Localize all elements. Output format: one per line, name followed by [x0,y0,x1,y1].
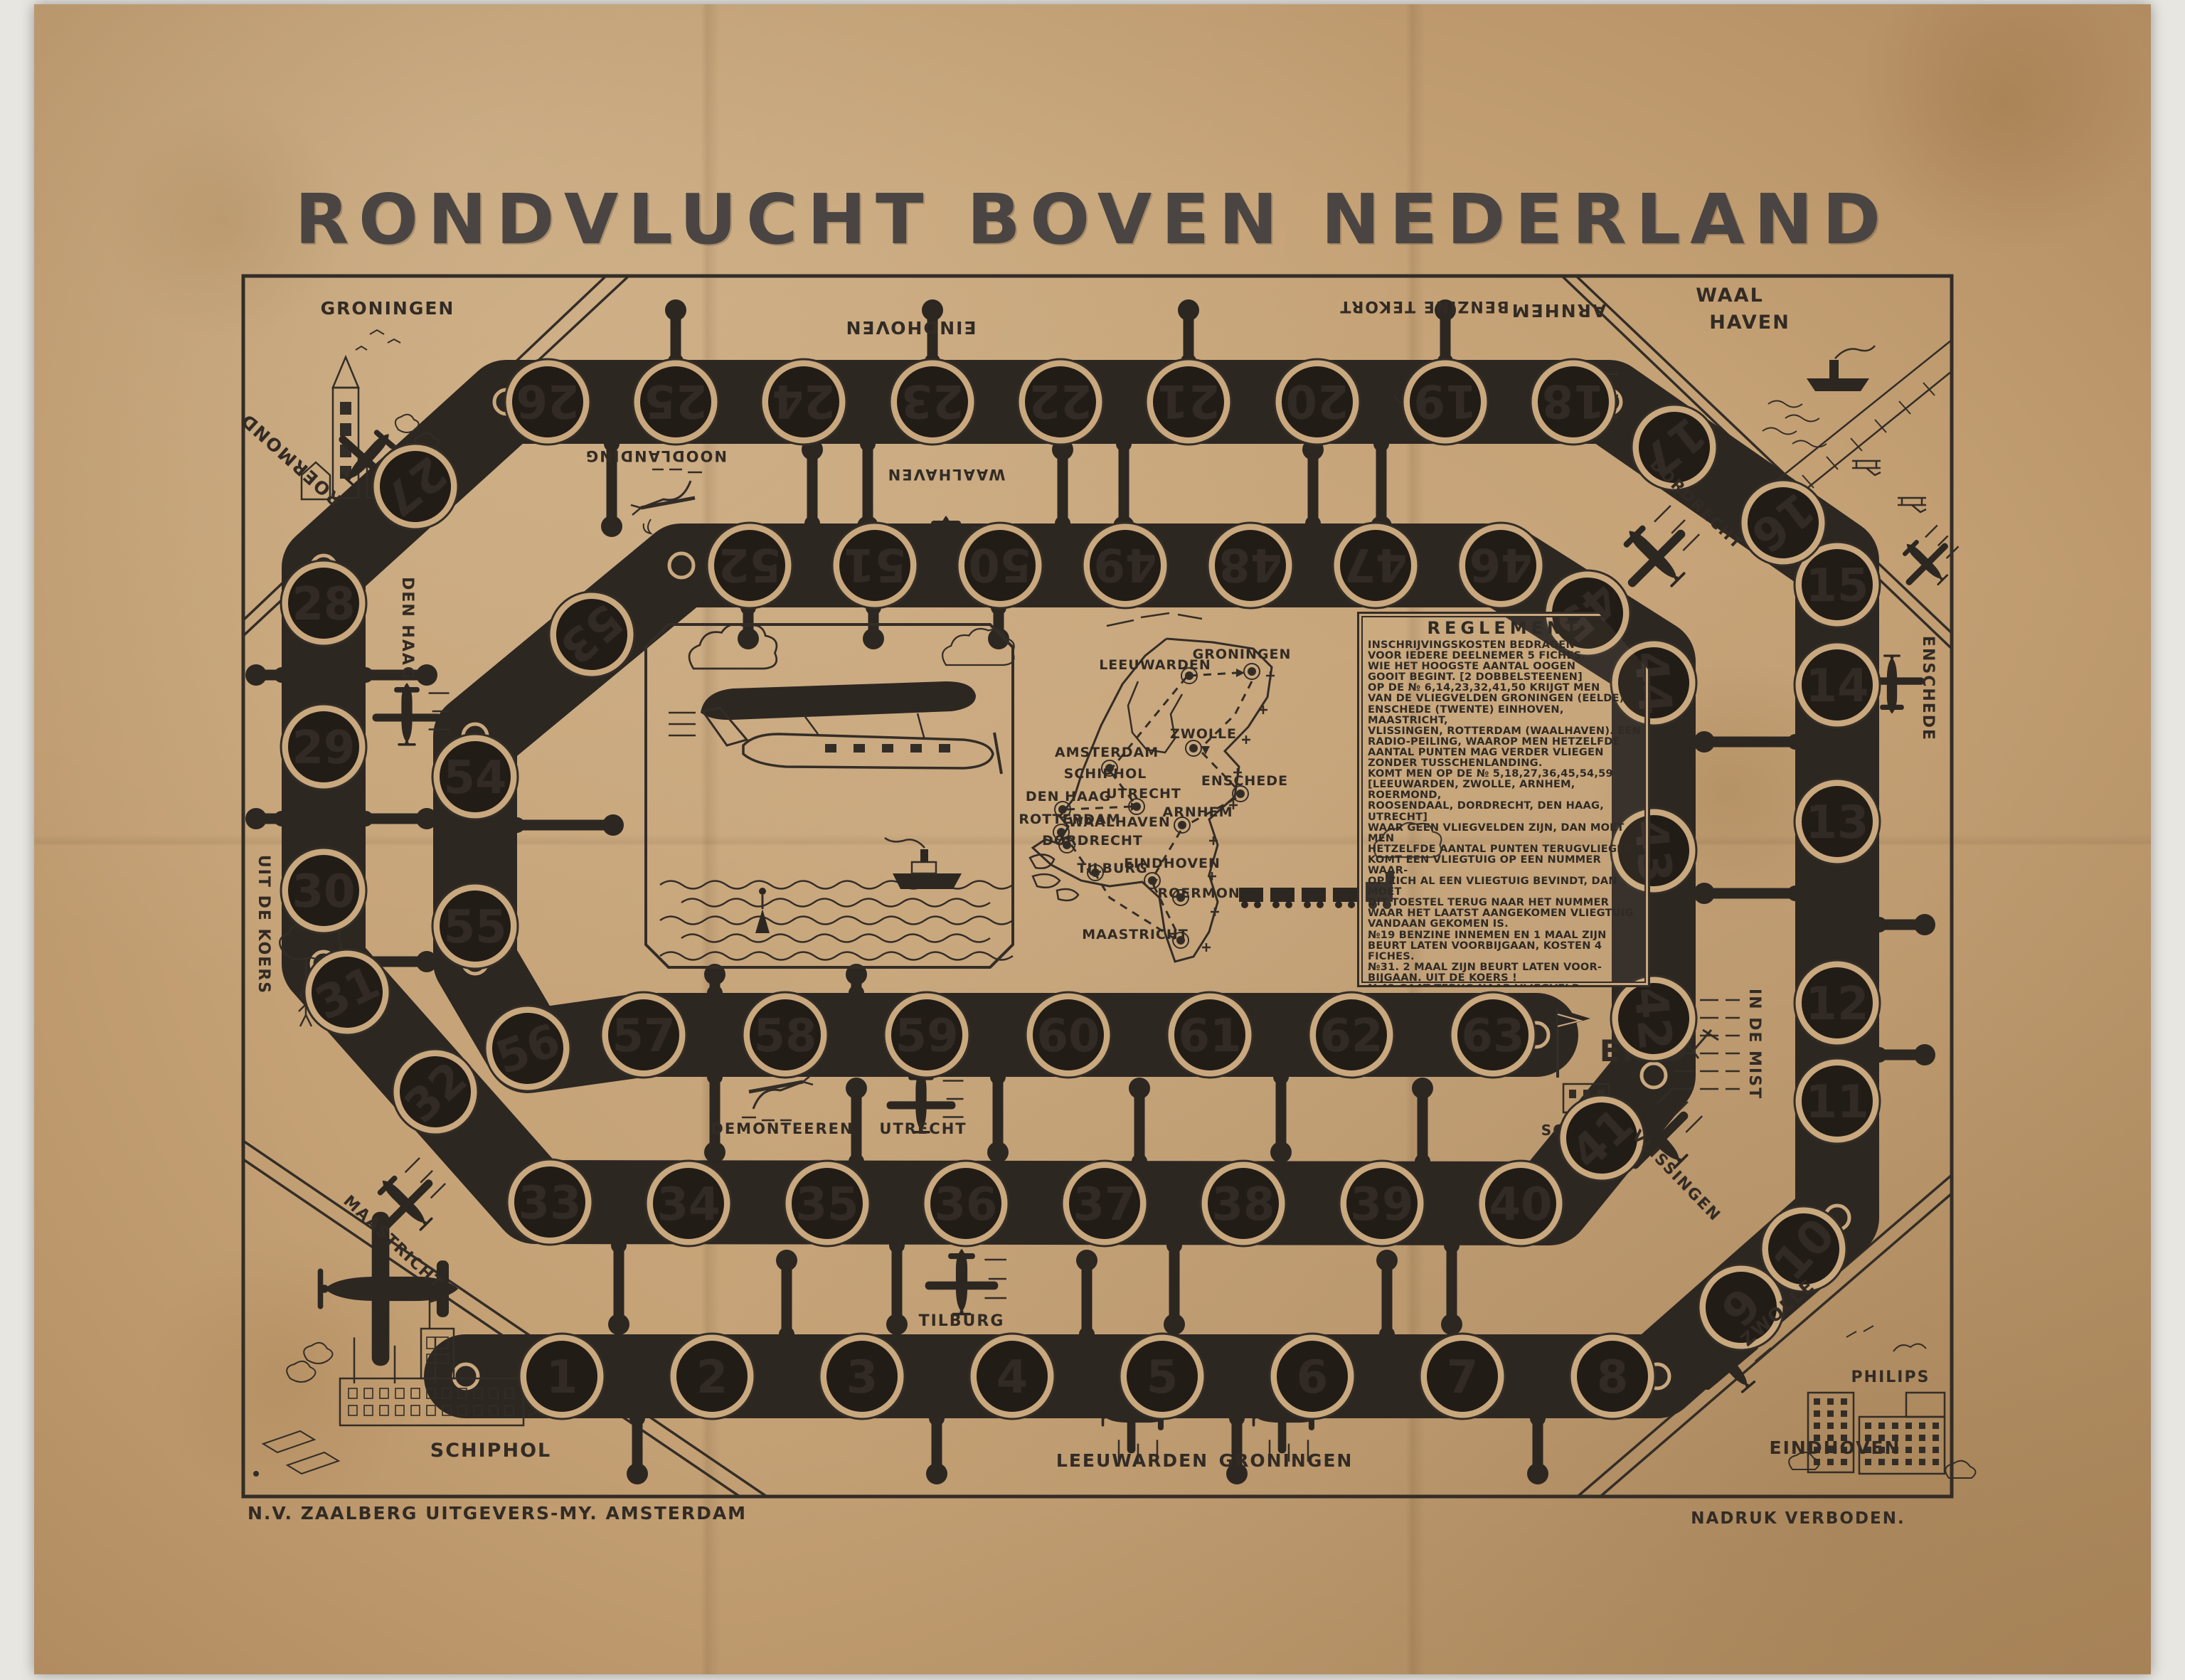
buoy-icon [755,888,770,933]
board-space-57: 57 [601,992,686,1078]
space-number: 61 [1178,1010,1241,1063]
board-space-35: 35 [785,1161,870,1246]
board-space-7: 7 [1420,1334,1505,1419]
map-city-utrecht: UTRECHT [1106,786,1181,802]
board-space-55: 55 [432,883,518,969]
space-number: 6 [1297,1351,1329,1404]
space-number: 24 [772,374,835,427]
track-label-nadruk: NADRUK VERBODEN. [1691,1509,1905,1528]
board-space-28: 28 [281,560,366,646]
board-space-54: 54 [432,734,518,819]
board-space-6: 6 [1270,1334,1355,1419]
board-space-38: 38 [1201,1161,1286,1246]
board-space-30: 30 [281,848,366,933]
space-number: 11 [1805,1076,1868,1129]
board-space-8: 8 [1570,1334,1655,1419]
map-city-schiphol: SCHIPHOL [1064,766,1147,782]
board-space-62: 62 [1309,992,1394,1078]
track-label-schiphol-corner: SCHIPHOL [430,1440,551,1462]
board-space-20: 20 [1275,359,1360,445]
board-space-19: 19 [1403,359,1488,445]
space-number: 8 [1597,1351,1629,1404]
track-label-enschede: ENSCHEDE [1919,636,1937,741]
space-number: 23 [900,374,964,427]
map-city-zwolle: ZWOLLE [1170,726,1237,742]
board-space-46: 46 [1458,523,1543,608]
game-board-poster: GRONINGENLEEUWARDENZWOLLEAMSTERDAMSCHIPH… [0,0,2185,1680]
space-number: 34 [656,1179,720,1231]
track-label-utrecht: UTRECHT [879,1120,967,1137]
board-space-25: 25 [633,359,718,445]
map-city-eindhoven: EINDHOVEN [1124,856,1221,871]
space-number: 59 [895,1010,958,1063]
space-number: 52 [718,538,781,590]
board-space-26: 26 [505,359,590,445]
board-space-61: 61 [1167,992,1253,1078]
board-space-60: 60 [1026,992,1111,1078]
track-label-vlissingen: VLISSINGEN [1628,1127,1724,1225]
board-space-48: 48 [1208,523,1293,608]
space-number: 19 [1413,374,1477,427]
sea-panel [646,624,1014,967]
space-number: 21 [1157,374,1220,427]
space-number: 5 [1147,1351,1179,1404]
board-space-12: 12 [1795,960,1880,1046]
space-number: 7 [1447,1351,1479,1404]
board-space-58: 58 [743,992,828,1078]
space-number: 36 [934,1179,997,1231]
track-label-philips: PHILIPS [1851,1368,1930,1386]
space-number: 42 [1623,985,1681,1053]
space-number: 62 [1319,1010,1383,1063]
space-number: 30 [292,866,355,918]
board-space-5: 5 [1120,1334,1205,1419]
track-label-groningen-corner: GRONINGEN [321,298,455,319]
centre-plane [669,681,1001,774]
track-label-tilburg: TILBURG [919,1312,1005,1330]
map-city-leeuwarden: LEEUWARDEN [1099,657,1211,673]
space-number: 35 [795,1179,858,1231]
track-label-waalhaven-inner: WAALHAVEN [887,466,1006,483]
space-number: 18 [1541,374,1605,427]
board-space-13: 13 [1795,779,1880,864]
board-space-18: 18 [1531,359,1616,445]
space-number: 20 [1285,374,1349,427]
map-city-maastricht: MAASTRICHT [1082,927,1188,942]
board-space-22: 22 [1018,359,1103,445]
space-number: 33 [518,1177,581,1230]
board-space-59: 59 [884,992,969,1078]
space-number: 40 [1489,1179,1552,1231]
space-number: 13 [1805,797,1868,849]
board-space-23: 23 [890,359,975,445]
space-number: 38 [1211,1179,1275,1231]
board-space-1: 1 [519,1334,605,1419]
space-number: 25 [644,374,707,427]
space-number: 46 [1469,538,1532,590]
track-label-haven: HAVEN [1709,312,1790,334]
board-space-47: 47 [1333,523,1418,608]
board-space-50: 50 [957,523,1043,608]
space-number: 50 [968,538,1031,590]
publisher-credit: N.V. ZAALBERG UITGEVERS-MY. AMSTERDAM [248,1503,747,1524]
space-number: 47 [1344,538,1407,590]
track-label-uit-de-koers: UIT DE KOERS [255,855,272,994]
board-space-24: 24 [761,359,846,445]
board-space-11: 11 [1795,1058,1880,1144]
space-number: 39 [1350,1179,1413,1231]
space-number: 29 [292,722,355,775]
board-space-2: 2 [669,1334,755,1419]
board-space-51: 51 [832,523,918,608]
map-city-amsterdam: AMSTERDAM [1055,745,1159,760]
track-label-leeuwarden: LEEUWARDEN [1056,1450,1208,1471]
board-space-63: 63 [1450,992,1536,1078]
track-label-in-de-mist: IN DE MIST [1745,989,1763,1100]
space-number: 51 [843,538,906,590]
rules-panel: REGLEMENT INSCHRIJVINGSKOSTEN BEDRAGEN V… [1357,612,1650,987]
space-number: 2 [696,1351,728,1404]
track-label-noodlanding: NOODLANDING [585,447,727,464]
track-label-roermond: ROERMOND [236,409,346,510]
space-number: 54 [443,752,506,804]
board-space-52: 52 [707,523,792,608]
board-space-33: 33 [507,1159,592,1245]
space-number: 60 [1036,1010,1100,1063]
space-number: 28 [292,578,355,631]
netherlands-map: GRONINGENLEEUWARDENZWOLLEAMSTERDAMSCHIPH… [1019,613,1291,962]
sea-waves [660,881,1013,960]
space-number: 3 [846,1351,878,1404]
board-space-39: 39 [1339,1161,1425,1246]
space-number: 48 [1218,538,1282,590]
space-number: 22 [1028,374,1092,427]
space-number: 15 [1805,560,1868,612]
space-number: 55 [443,901,506,954]
space-number: 4 [996,1351,1028,1404]
track-label-den-haag: DEN HAAG [398,577,416,681]
space-number: 58 [753,1010,817,1063]
map-city-waalhaven: WAALHAVEN [1068,814,1171,830]
space-number: 1 [546,1351,578,1404]
space-number: 49 [1093,538,1157,590]
board-space-34: 34 [646,1161,731,1246]
plane-icon [925,1249,999,1316]
map-city-dordrecht: DORDRECHT [1042,833,1143,849]
map-city-den-haag: DEN HAAG [1026,789,1111,804]
board-space-21: 21 [1146,359,1231,445]
map-city-arnhem: ARNHEM [1162,804,1233,820]
track-label-demonteeren: DEMONTEEREN [711,1120,854,1137]
board-space-29: 29 [281,704,366,790]
track-label-eindhoven-corner: EINDHOVEN [1770,1437,1901,1458]
space-number: 57 [612,1010,675,1063]
board-space-3: 3 [819,1334,905,1419]
game-title: RONDVLUCHT BOVEN NEDERLAND [0,179,2185,260]
board-space-14: 14 [1795,642,1880,728]
map-city-enschede: ENSCHEDE [1201,773,1288,789]
space-number: 26 [516,374,579,427]
rules-title: REGLEMENT [1368,618,1641,638]
space-number: 63 [1461,1010,1524,1063]
track-label-benzine-tekort: BENZINE TEKORT [1339,297,1509,315]
board-space-4: 4 [969,1334,1055,1419]
board-space-49: 49 [1083,523,1168,608]
board-space-40: 40 [1478,1161,1563,1246]
space-number: 14 [1805,660,1868,713]
track-label-arnhem: ARNHEM [1511,300,1606,321]
track-label-eindhoven-top: EINDHOVEN [845,317,977,338]
space-number: 12 [1805,978,1868,1031]
map-city-roermond: ROERMOND [1157,886,1252,901]
board-space-37: 37 [1062,1161,1147,1246]
track-label-waal: WAAL [1696,285,1764,307]
board-space-36: 36 [923,1161,1009,1246]
track-label-groningen-bottom: GRONINGEN [1219,1450,1354,1471]
space-number: 37 [1073,1179,1136,1231]
